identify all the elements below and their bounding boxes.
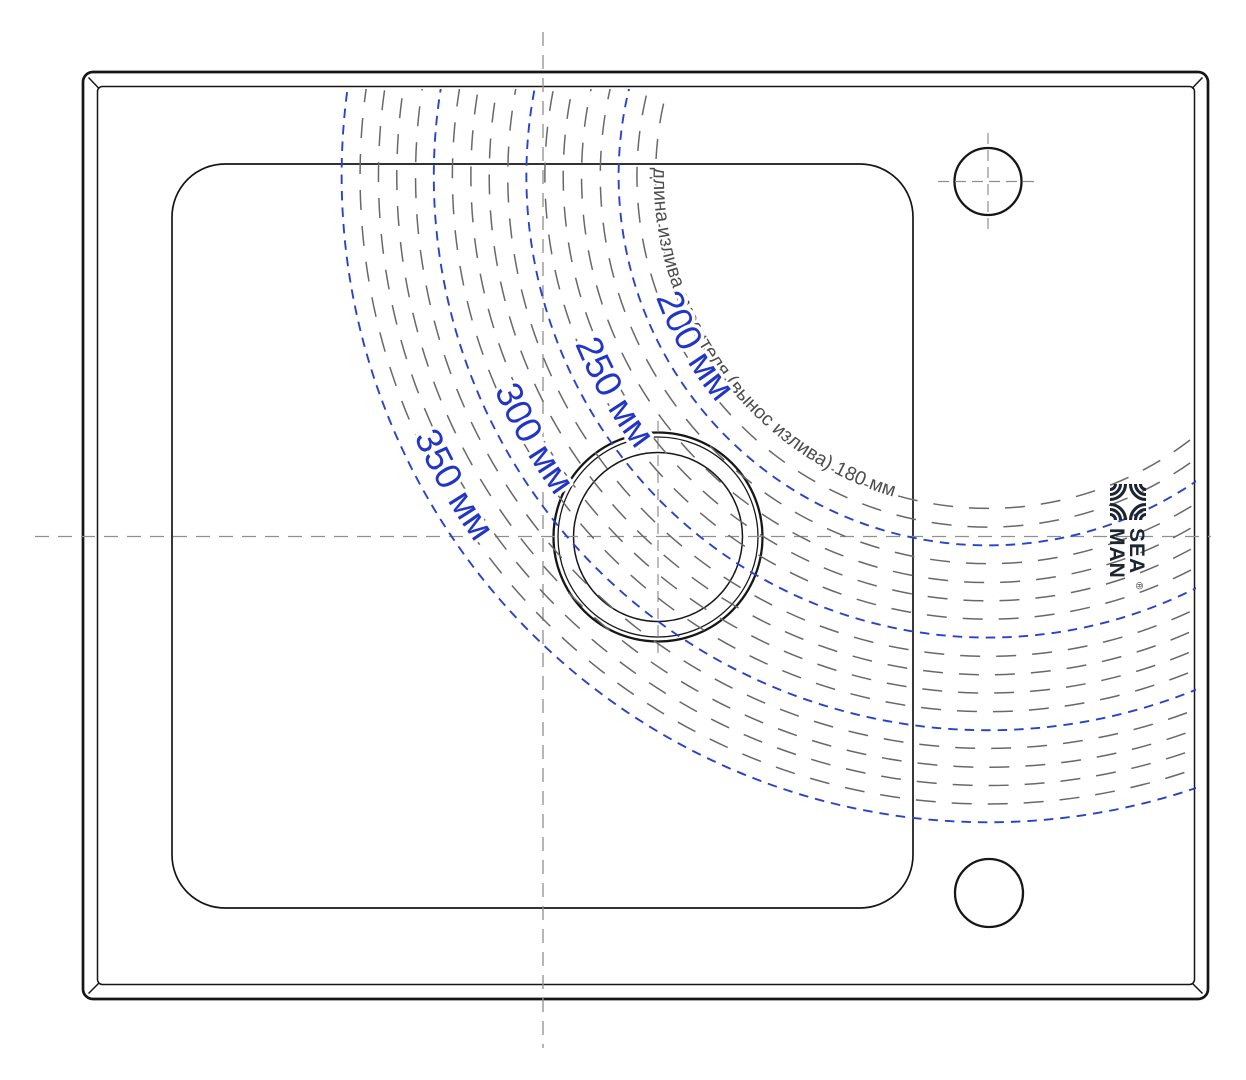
reach-arc-240mm [545, 0, 1246, 619]
reach-label-300: 300 мм [487, 377, 583, 502]
reach-label-350: 350 мм [407, 422, 503, 547]
reach-arc-190mm [637, 28, 1214, 527]
reach-arc-350mm [342, 0, 1246, 822]
reach-arc-310mm [416, 0, 1246, 748]
wave-icon [1110, 484, 1146, 520]
logo-registered-mark: ® [1133, 582, 1144, 590]
reach-arc-300mm [434, 0, 1246, 730]
corner-chamfer-tr [1192, 78, 1203, 89]
reach-arc-200mm [619, 20, 1226, 545]
sink-drawing-canvas: длина излива смесителя (вынос излива) 18… [0, 0, 1246, 1080]
logo-line2: MAN [1105, 528, 1128, 579]
corner-chamfer-br [1192, 983, 1203, 994]
reach-labels: 350 мм 300 мм 250 мм 200 мм [407, 285, 743, 548]
sink-top-view-drawing: длина излива смесителя (вынос излива) 18… [0, 0, 1246, 1080]
sink-inner-edge [98, 87, 1195, 985]
corner-chamfer-bl [89, 983, 100, 994]
reach-label-250: 250 мм [568, 331, 663, 455]
reach-arc-180mm [656, 36, 1202, 509]
sink-outer-edge [83, 72, 1208, 999]
centerlines [35, 32, 1211, 1048]
brand-logo: SEA MAN ® [1105, 484, 1148, 590]
sink-outline [83, 72, 1208, 999]
spout-reach-main-arcs [342, 0, 1246, 822]
corner-chamfer-tl [89, 78, 100, 89]
reach-arc-210mm [600, 12, 1237, 564]
accessory-hole-circle [955, 859, 1023, 927]
faucet-hole [938, 133, 1039, 231]
